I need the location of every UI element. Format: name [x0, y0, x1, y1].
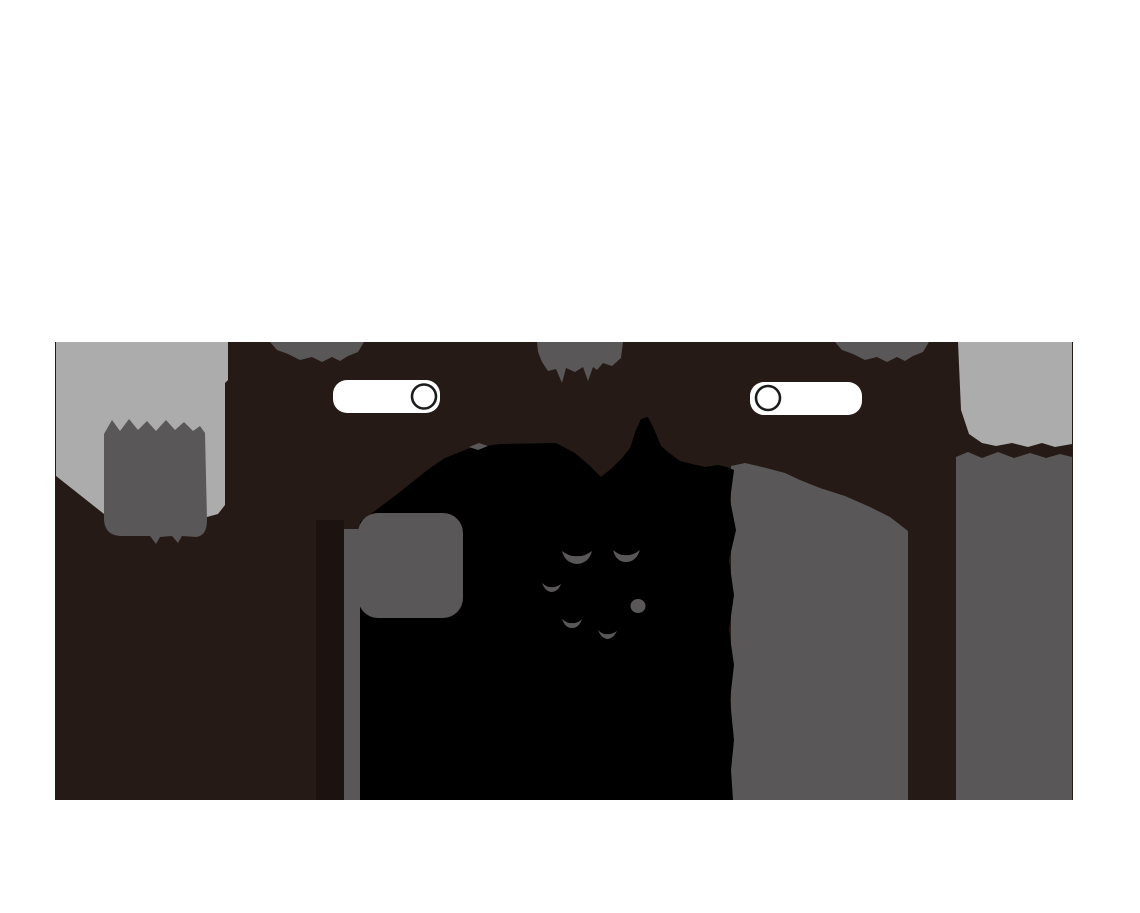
gray-slope-block: [731, 463, 908, 800]
light-gray-blob-top-right: [958, 342, 1072, 447]
abstract-illustration: [0, 0, 1140, 913]
dot-mark: [631, 599, 646, 613]
gray-blob-top-left: [104, 419, 207, 544]
gray-strip-left: [344, 529, 360, 800]
toggle-right[interactable]: [750, 382, 862, 415]
gray-rounded-blob: [358, 513, 463, 618]
toggle-left[interactable]: [333, 380, 440, 413]
shadow-band: [316, 520, 344, 800]
page: [0, 0, 1140, 913]
gray-column-right: [956, 452, 1072, 800]
